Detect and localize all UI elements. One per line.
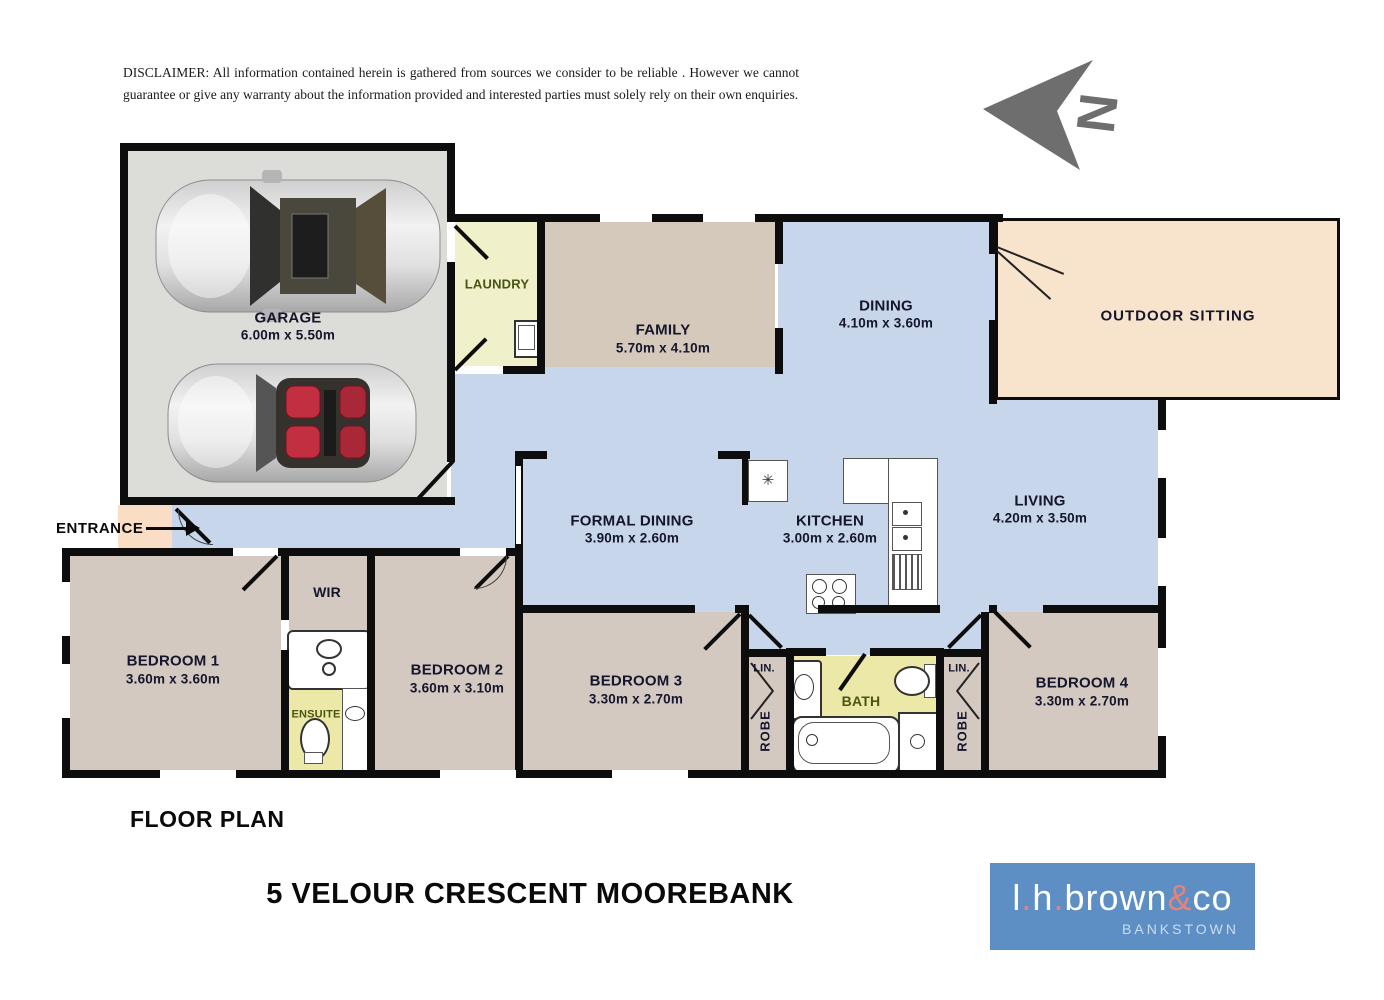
entrance-arrow-icon [186,520,200,536]
bedroom4-label: BEDROOM 4 [1036,676,1129,691]
bed3-wall-top-a [523,605,695,613]
laundry-tub-basin [518,325,535,350]
bedroom1-label: BEDROOM 1 [127,654,220,669]
ensuite-shower-rose [345,706,365,721]
north-arrow-icon: N [978,48,1153,176]
garage-label: GARAGE [254,311,321,326]
family-dims: 5.70m x 4.10m [616,341,710,355]
wir-label: WIR [313,585,341,599]
bedroom1-dims: 3.60m x 3.60m [126,672,220,686]
bedroom2-dims: 3.60m x 3.10m [410,681,504,695]
sedan-car-image [152,170,444,322]
bed2-window-bottom [440,770,516,778]
bed3-window-bottom [612,770,688,778]
bath-wall-right [936,655,944,778]
robe-bed4-wall [981,612,989,778]
dining-outdoor-wall-b [989,320,997,404]
formal-dining-stub-top [523,451,547,459]
entrance-arrow-line [146,527,188,530]
ensuite-shower [342,688,369,776]
ensuite-label: ENSUITE [291,710,340,721]
ensuite-drain [322,662,336,676]
bath-vanity-basin [794,674,814,700]
bed1-window-1 [62,582,70,636]
hall-wall-bottom-a [62,548,233,556]
bed1-window-2 [62,664,70,718]
living-label: LIVING [1014,494,1065,509]
robe-right-label: ROBE [956,710,969,752]
north-letter: N [1064,90,1128,136]
ensuite-faucet [316,639,342,659]
open-area-floor [545,367,995,455]
kitchen-fridge: ✳ [748,460,788,502]
laundry-wall-bottom [503,366,545,374]
family-window-1 [600,214,652,222]
family-window-2 [703,214,755,222]
bath-toilet [894,666,930,696]
hall-floor [170,505,515,548]
bath-label: BATH [842,694,881,708]
bath-wall-top-a [786,648,826,656]
family-dining-stub-bottom [775,328,783,374]
bedroom2-label: BEDROOM 2 [411,663,504,678]
kitchen-stub-left [742,455,748,505]
bedroom3-dims: 3.30m x 2.70m [589,692,683,706]
kitchen-sink-1-drain [903,510,908,515]
suite-bed2-wall [367,556,375,778]
garage-wall-bottom [120,497,455,505]
family-label: FAMILY [636,323,691,338]
robe-left-label: ROBE [759,710,772,752]
bed1-suite-wall-b [281,650,289,778]
laundry-wall-right [537,214,545,374]
bath-shower-rose [910,734,925,749]
agency-logo: l.h.brown&co BANKSTOWN [990,863,1255,950]
lin-left-wall-bottom [745,649,791,657]
dining-label: DINING [859,299,913,314]
formal-dining-dims: 3.90m x 2.60m [585,531,679,545]
bed4-window [1158,648,1166,736]
property-address: 5 VELOUR CRESCENT MOOREBANK [200,878,860,911]
dining-floor [778,222,995,368]
bed4-wall-top-b [1043,605,1165,613]
living-window-1 [1158,430,1166,478]
kitchen-sink-2-drain [903,535,908,540]
convertible-car-image [164,356,420,490]
kitchen-dims: 3.00m x 2.60m [783,531,877,545]
lin-right-label: LIN. [948,664,970,675]
bedroom4-dims: 3.30m x 2.70m [1035,694,1129,708]
ensuite-toilet-base [304,752,323,764]
living-window-2 [1158,538,1166,586]
bed3-lin-wall [741,612,749,778]
bed1-window-bottom [160,770,236,778]
bed1-suite-wall-a [281,556,289,620]
disclaimer-text: DISCLAIMER: All information contained he… [123,62,799,107]
hall-wall-bottom-b [278,548,460,556]
agency-logo-suburb: BANKSTOWN [1122,921,1239,937]
garage-wall-right-b [447,262,455,462]
kitchen-dishwasher [892,554,922,590]
garage-wall-right-a [447,143,455,222]
bedroom3-label: BEDROOM 3 [590,674,683,689]
laundry-label: LAUNDRY [465,278,529,291]
dining-outdoor-wall-a [989,218,997,254]
corridor-wall-top [818,605,940,613]
family-dining-stub-top [775,222,783,264]
garage-dims: 6.00m x 5.50m [241,328,335,342]
floor-plan-title: FLOOR PLAN [130,806,285,833]
bath-wall-left [786,655,794,778]
outdoor-sitting-label: OUTDOOR SITTING [1101,309,1256,324]
bath-wall-top-b [870,648,944,656]
living-dims: 4.20m x 3.50m [993,511,1087,525]
dining-dims: 4.10m x 3.60m [839,316,933,330]
entrance-label: ENTRANCE [56,520,143,537]
bathtub-drain [806,734,818,746]
formal-dining-label: FORMAL DINING [570,514,693,529]
lin-left-label: LIN. [753,664,775,675]
kitchen-label: KITCHEN [796,514,864,529]
garage-wall-top [120,143,455,151]
cooktop-burner-1 [812,579,827,594]
agency-logo-name: l.h.brown&co [990,877,1255,919]
floor-plan-page: DISCLAIMER: All information contained he… [0,0,1384,1000]
garage-wall-left [120,143,128,505]
cooktop-burner-2 [832,579,847,594]
lin-right-wall-bottom [940,649,986,657]
formal-dining-window [516,466,521,544]
